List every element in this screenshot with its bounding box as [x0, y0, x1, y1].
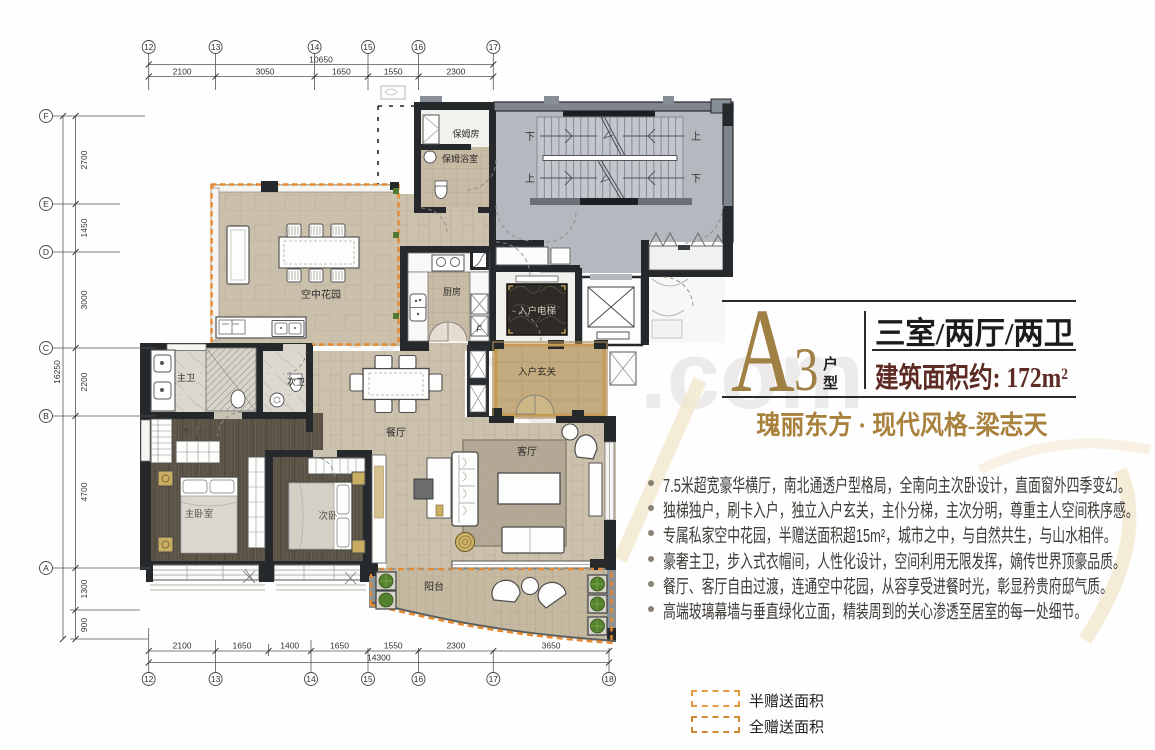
svg-text:D: D	[43, 247, 49, 257]
svg-text:14: 14	[306, 674, 316, 684]
svg-text:保姆房: 保姆房	[452, 128, 479, 139]
svg-text:次卧: 次卧	[318, 510, 338, 522]
svg-text:14300: 14300	[367, 653, 391, 663]
svg-text:2100: 2100	[173, 67, 192, 77]
svg-text:厨房: 厨房	[443, 286, 461, 297]
svg-text:阳台: 阳台	[424, 580, 444, 593]
svg-text:13: 13	[211, 674, 221, 684]
svg-text:1650: 1650	[330, 641, 349, 651]
svg-text:16250: 16250	[52, 360, 62, 384]
svg-text:2300: 2300	[446, 67, 465, 77]
svg-text:2200: 2200	[79, 372, 89, 391]
svg-text:餐厅: 餐厅	[386, 426, 406, 439]
svg-text:1650: 1650	[233, 641, 252, 651]
svg-text:17: 17	[489, 42, 499, 52]
svg-text:客厅: 客厅	[517, 445, 537, 458]
svg-text:2700: 2700	[79, 150, 89, 169]
svg-text:衣帽间: 衣帽间	[182, 425, 209, 436]
svg-text:E: E	[43, 199, 49, 209]
svg-text:下: 下	[525, 132, 535, 143]
svg-text:16: 16	[414, 42, 424, 52]
svg-text:14: 14	[310, 42, 320, 52]
svg-text:F: F	[476, 324, 482, 334]
svg-text:F: F	[43, 111, 48, 121]
svg-text:A: A	[43, 563, 49, 573]
svg-text:12: 12	[144, 674, 154, 684]
svg-text:1650: 1650	[332, 67, 351, 77]
svg-text:2300: 2300	[446, 641, 465, 651]
svg-text:上: 上	[691, 131, 701, 143]
svg-text:上: 上	[525, 173, 535, 185]
svg-text:空中花园: 空中花园	[301, 288, 341, 301]
svg-text:12: 12	[144, 42, 154, 52]
svg-text:1550: 1550	[384, 641, 403, 651]
svg-text:3650: 3650	[542, 641, 561, 651]
svg-text:16: 16	[414, 674, 424, 684]
svg-text:1400: 1400	[280, 641, 299, 651]
svg-text:次卫: 次卫	[287, 376, 305, 387]
svg-text:17: 17	[489, 674, 499, 684]
svg-text:1300: 1300	[79, 579, 89, 598]
svg-text:900: 900	[79, 618, 89, 632]
svg-text:3000: 3000	[79, 290, 89, 309]
svg-text:1450: 1450	[79, 218, 89, 237]
svg-text:13: 13	[211, 42, 221, 52]
svg-text:2100: 2100	[173, 641, 192, 651]
svg-text:15: 15	[363, 674, 373, 684]
svg-text:主卧室: 主卧室	[185, 508, 214, 520]
svg-text:入户电梯: 入户电梯	[518, 305, 557, 317]
svg-text:15: 15	[363, 42, 373, 52]
svg-text:10650: 10650	[309, 55, 333, 65]
svg-text:下: 下	[691, 174, 701, 185]
svg-text:保姆浴室: 保姆浴室	[442, 153, 478, 164]
svg-text:C: C	[43, 343, 49, 353]
svg-text:入户玄关: 入户玄关	[518, 366, 557, 378]
svg-text:B: B	[43, 411, 49, 421]
svg-text:18: 18	[604, 674, 614, 684]
svg-text:3050: 3050	[256, 67, 275, 77]
svg-text:1550: 1550	[384, 67, 403, 77]
svg-text:4700: 4700	[79, 482, 89, 501]
svg-text:主卫: 主卫	[177, 372, 195, 383]
